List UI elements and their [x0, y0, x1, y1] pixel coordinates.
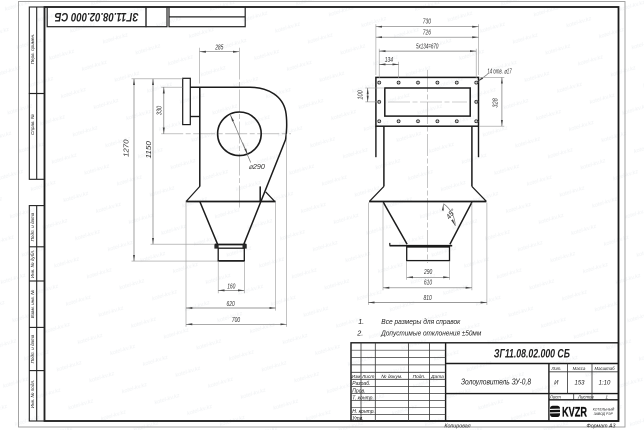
svg-text:Золоуловитель ЗУ-0,8: Золоуловитель ЗУ-0,8	[461, 377, 531, 387]
svg-text:Взам. инв. №: Взам. инв. №	[30, 290, 35, 318]
svg-text:285: 285	[215, 43, 225, 52]
svg-text:ЗГ11.08.02.000 СБ: ЗГ11.08.02.000 СБ	[494, 346, 570, 360]
svg-text:Лист: Лист	[549, 395, 561, 400]
svg-text:14 отв. ⌀17: 14 отв. ⌀17	[487, 66, 512, 75]
svg-text:Разраб.: Разраб.	[352, 381, 370, 387]
svg-text:700: 700	[232, 315, 240, 324]
svg-text:290: 290	[423, 267, 432, 276]
svg-text:ЗГ11.08.02.000 СБ: ЗГ11.08.02.000 СБ	[55, 10, 139, 22]
svg-text:Инв. № подл.: Инв. № подл.	[30, 380, 35, 409]
svg-text:КОТЕЛЬНЫЙ: КОТЕЛЬНЫЙ	[593, 407, 615, 411]
svg-text:Все размеры для справок: Все размеры для справок	[381, 317, 461, 326]
svg-text:Изм: Изм	[352, 374, 362, 380]
svg-text:726: 726	[423, 27, 431, 36]
svg-text:153: 153	[574, 380, 585, 386]
svg-text:Допустимые отклонения ±50мм: Допустимые отклонения ±50мм	[380, 329, 481, 338]
svg-text:Масса: Масса	[573, 366, 586, 371]
svg-text:Подп.: Подп.	[413, 374, 426, 380]
svg-text:Подп. и дата: Подп. и дата	[30, 334, 35, 363]
svg-text:100: 100	[355, 90, 364, 99]
svg-text:Утв.: Утв.	[352, 416, 363, 422]
svg-text:ЗАВОД РЭР: ЗАВОД РЭР	[594, 412, 614, 416]
svg-text:Дата: Дата	[430, 374, 444, 380]
svg-text:Лист: Лист	[361, 374, 374, 380]
svg-text:5x134=670: 5x134=670	[416, 41, 439, 50]
svg-text:⌀290: ⌀290	[249, 162, 265, 171]
svg-text:Лит.: Лит.	[550, 366, 561, 371]
svg-text:2.: 2.	[356, 329, 363, 338]
svg-text:Т. контр.: Т. контр.	[352, 395, 374, 401]
svg-text:1150: 1150	[144, 141, 153, 159]
svg-text:1:10: 1:10	[599, 380, 611, 386]
svg-text:Перв. примен.: Перв. примен.	[30, 34, 35, 65]
svg-text:Подп. и дата: Подп. и дата	[30, 212, 35, 241]
svg-text:Справ. №: Справ. №	[30, 114, 35, 135]
svg-text:610: 610	[424, 278, 432, 287]
svg-text:1270: 1270	[122, 140, 131, 158]
svg-text:328: 328	[491, 98, 500, 107]
svg-text:KVZR: KVZR	[562, 405, 587, 420]
svg-text:Инв. № дубл.: Инв. № дубл.	[30, 250, 35, 278]
svg-text:Пров.: Пров.	[352, 388, 365, 394]
svg-text:Н. контр.: Н. контр.	[352, 409, 375, 415]
svg-text:Копировал: Копировал	[444, 423, 470, 429]
svg-text:620: 620	[227, 299, 235, 308]
svg-text:1.: 1.	[358, 317, 364, 326]
svg-text:730: 730	[423, 17, 431, 26]
svg-text:810: 810	[424, 293, 432, 302]
svg-text:Формат А3: Формат А3	[587, 423, 616, 429]
svg-text:Масштаб: Масштаб	[594, 366, 615, 371]
svg-text:Листов: Листов	[577, 395, 594, 400]
svg-text:160: 160	[227, 281, 235, 290]
svg-text:№ докум.: № докум.	[381, 374, 402, 380]
svg-text:134: 134	[385, 55, 393, 64]
svg-text:330: 330	[154, 106, 163, 115]
svg-text:И: И	[554, 380, 559, 386]
